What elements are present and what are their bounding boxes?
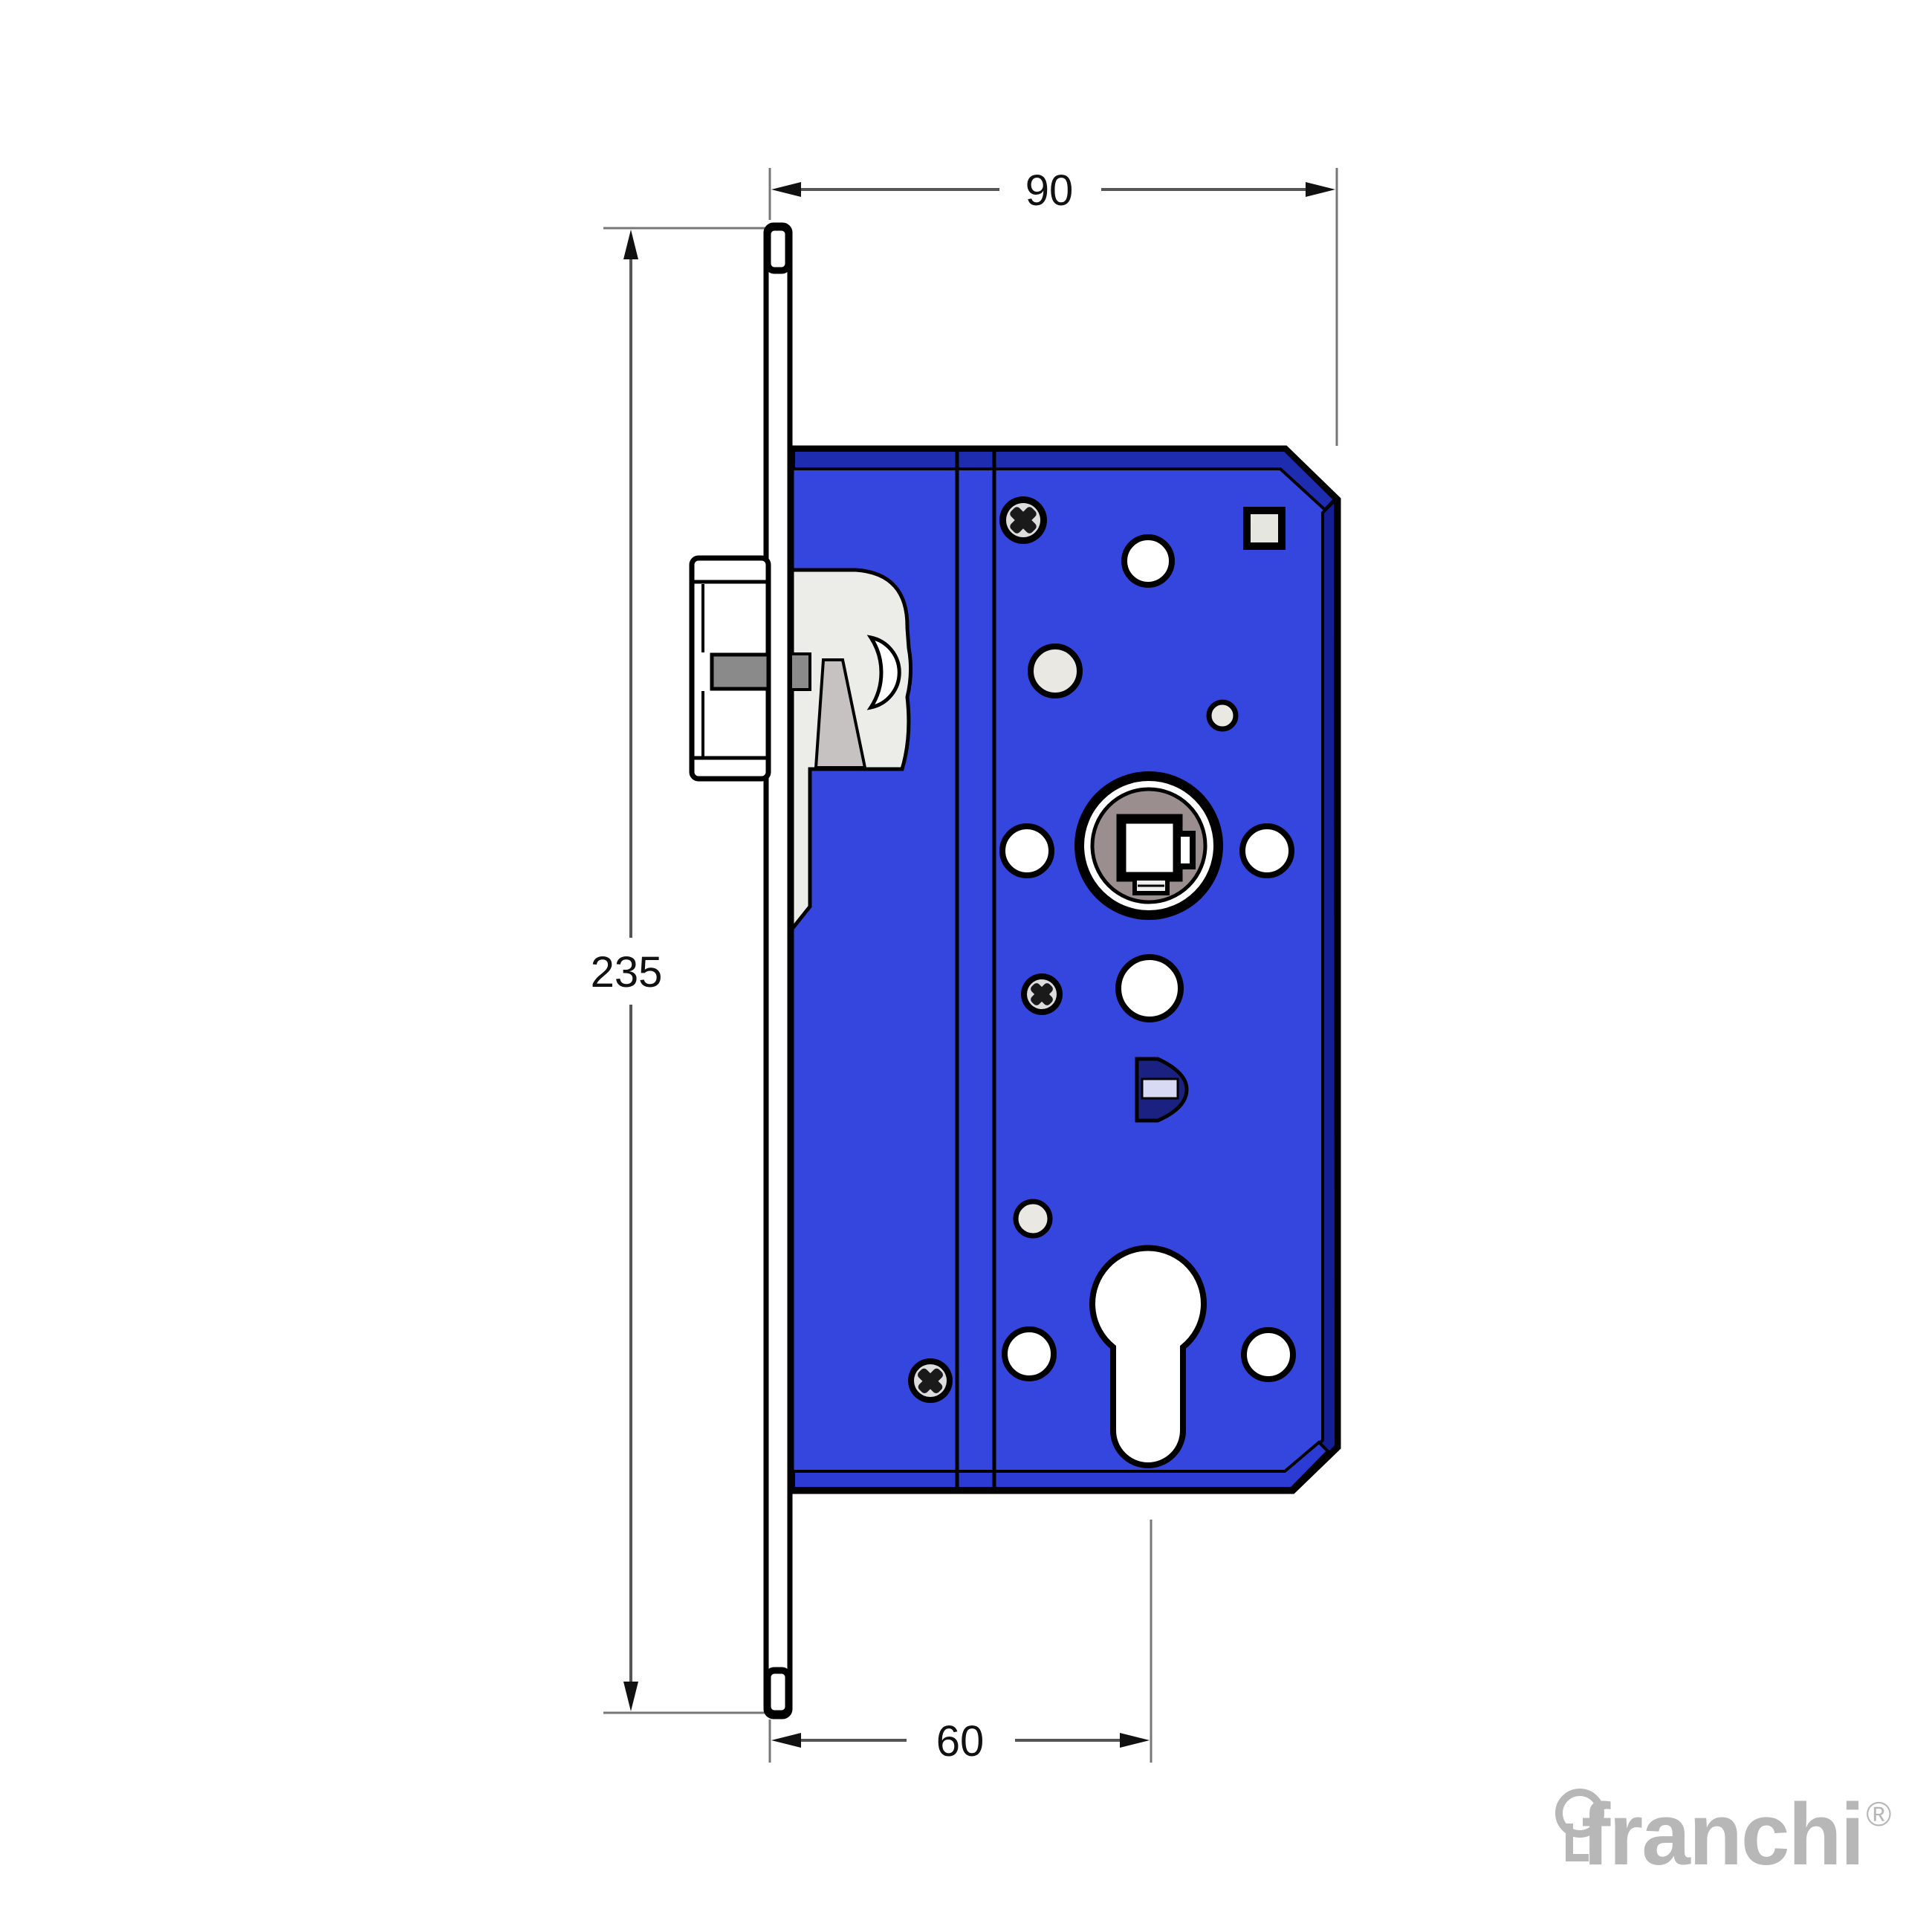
registered-trademark-icon: ®: [1866, 1794, 1891, 1834]
arrowhead-right-icon: [1306, 182, 1335, 197]
hole: [1031, 646, 1080, 696]
hole: [1002, 826, 1051, 875]
screw-middle: [1021, 973, 1063, 1015]
hole: [1209, 702, 1236, 729]
hole: [1242, 826, 1291, 875]
arrowhead-left-icon: [771, 1733, 801, 1748]
square-hole: [1247, 510, 1282, 546]
latch-bolt-band: [712, 655, 768, 689]
dimension-width-90: 90: [770, 166, 1337, 446]
dimension-backset-label: 60: [936, 1717, 985, 1766]
faceplate: [766, 225, 790, 1717]
dimension-width-label: 90: [1025, 166, 1074, 215]
latch-band-inner: [791, 654, 810, 690]
spindle-hub: [1074, 771, 1223, 920]
hole: [1118, 957, 1181, 1020]
hole: [1005, 1329, 1054, 1378]
arrowhead-left-icon: [771, 182, 801, 197]
brand-logo: franchi ®: [1547, 1777, 1891, 1878]
arrowhead-up-icon: [623, 230, 638, 259]
faceplate-bottom-cap: [768, 1670, 788, 1714]
hole: [1244, 1330, 1293, 1379]
arrowhead-right-icon: [1120, 1733, 1150, 1748]
latch-bolt: [692, 558, 768, 779]
mortise-lock-drawing: 90 235 60: [0, 0, 1932, 1932]
screw-bottom: [908, 1358, 953, 1403]
hole: [1016, 1202, 1050, 1236]
follower-side-tab: [1178, 834, 1193, 866]
brand-name: franchi: [1581, 1791, 1863, 1878]
hole: [1124, 537, 1172, 585]
dimension-height-235: 235: [591, 228, 766, 1713]
technical-drawing-page: 90 235 60: [0, 0, 1932, 1932]
arrowhead-down-icon: [623, 1682, 638, 1711]
faceplate-top-cap: [768, 227, 788, 270]
screw-top: [999, 496, 1047, 544]
locking-pin-band: [1142, 1079, 1178, 1098]
faceplate-strip: [766, 225, 790, 1717]
dimension-height-label: 235: [591, 948, 663, 996]
dimension-backset-60: 60: [770, 1520, 1151, 1766]
square-follower: [1121, 819, 1178, 877]
